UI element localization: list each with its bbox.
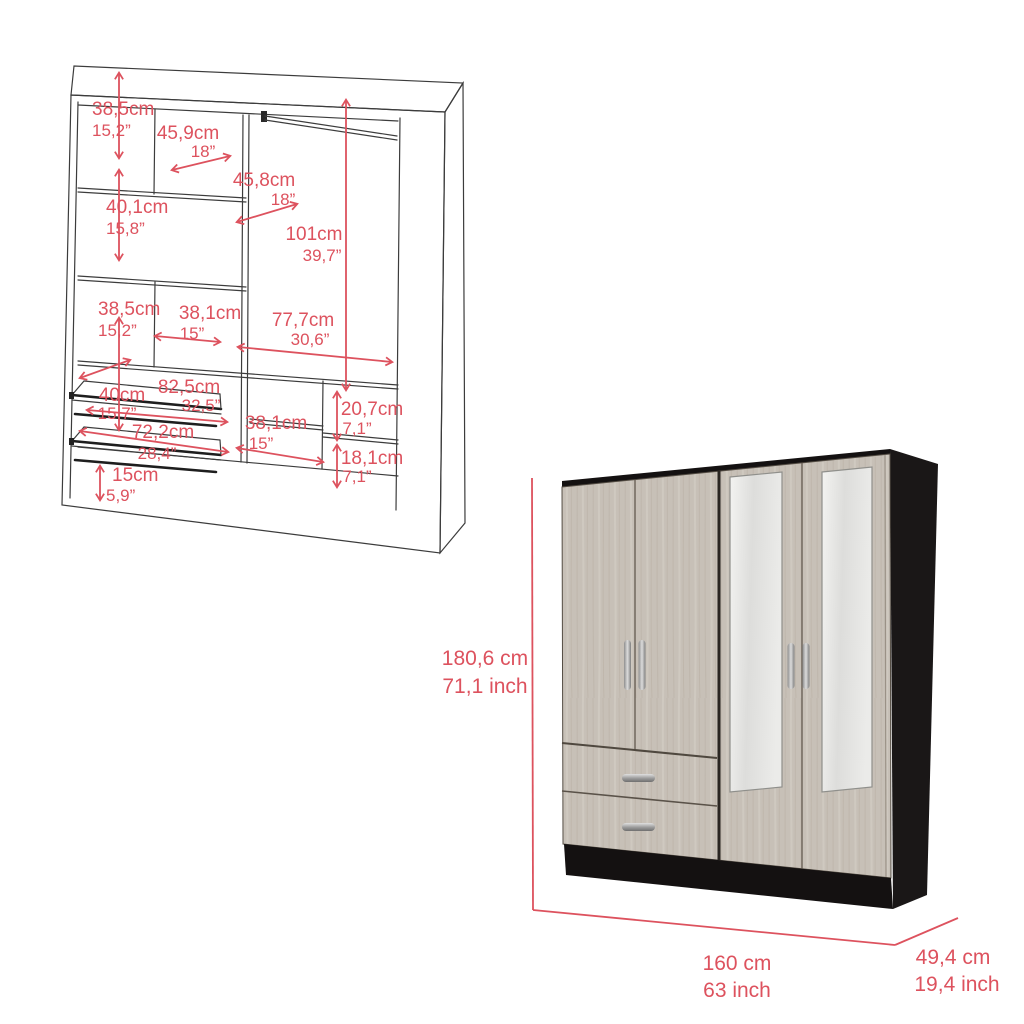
dim-upper-cubby-height: 20,7cm 7,1”	[337, 392, 403, 440]
svg-text:38,5cm: 38,5cm	[92, 99, 154, 120]
svg-text:63 inch: 63 inch	[703, 979, 771, 1002]
svg-text:82,5cm: 82,5cm	[158, 377, 220, 398]
mirror-left	[730, 472, 782, 792]
svg-text:20,7cm: 20,7cm	[341, 399, 403, 420]
svg-text:38,1cm: 38,1cm	[245, 413, 307, 434]
dim-lower-cubby-height: 18,1cm 7,1”	[337, 445, 403, 487]
svg-text:39,7”: 39,7”	[303, 246, 342, 265]
svg-text:28,4”: 28,4”	[138, 444, 177, 463]
svg-text:15,2”: 15,2”	[98, 321, 137, 340]
svg-text:40cm: 40cm	[99, 385, 145, 406]
drawer-handle	[622, 774, 655, 782]
svg-text:38,1cm: 38,1cm	[179, 303, 241, 324]
svg-text:7,1”: 7,1”	[342, 467, 372, 486]
dim-third-shelf-width: 38,1cm 15”	[155, 303, 241, 343]
door-handle	[803, 643, 810, 689]
svg-text:18”: 18”	[271, 190, 296, 209]
cabinet-side-panel	[890, 449, 938, 909]
dim-overall-depth: 49,4 cm 19,4 inch	[895, 918, 1000, 996]
svg-text:15”: 15”	[249, 434, 274, 453]
svg-text:101cm: 101cm	[285, 224, 342, 245]
svg-text:15”: 15”	[180, 324, 205, 343]
svg-text:45,8cm: 45,8cm	[233, 170, 295, 191]
svg-text:40,1cm: 40,1cm	[106, 197, 168, 218]
dim-lower-shelf-width: 38,1cm 15”	[237, 413, 323, 462]
dim-second-compartment-height: 40,1cm 15,8”	[106, 170, 168, 260]
dim-base-height: 15cm 5,9”	[100, 465, 158, 505]
dim-overall-width: 160 cm 63 inch	[533, 910, 895, 1002]
wireframe-diagram: 38,5cm 15,2” 45,9cm 18” 45,8cm 18” 40,1c…	[58, 42, 488, 562]
svg-text:15,2”: 15,2”	[92, 121, 131, 140]
svg-text:18”: 18”	[191, 142, 216, 161]
svg-text:19,4 inch: 19,4 inch	[914, 973, 999, 996]
door-handle	[788, 643, 795, 689]
svg-text:32,5”: 32,5”	[182, 396, 221, 415]
door-handle	[624, 640, 631, 690]
product-render: 180,6 cm 71,1 inch 160 cm 63 inch 49,4 c…	[430, 438, 1024, 1024]
svg-text:72,2cm: 72,2cm	[132, 422, 194, 443]
svg-text:49,4 cm: 49,4 cm	[916, 946, 991, 969]
svg-text:77,7cm: 77,7cm	[272, 310, 334, 331]
dim-top-left-compartment-height: 38,5cm 15,2”	[92, 73, 154, 158]
mirror-right	[822, 467, 872, 792]
dim-top-shelf-width: 45,9cm 18”	[157, 123, 230, 170]
svg-text:71,1 inch: 71,1 inch	[442, 675, 527, 698]
door-handle	[639, 640, 646, 690]
svg-text:30,6”: 30,6”	[291, 330, 330, 349]
svg-text:45,9cm: 45,9cm	[157, 123, 219, 144]
svg-text:5,9”: 5,9”	[106, 486, 136, 505]
svg-text:18,1cm: 18,1cm	[341, 448, 403, 469]
svg-text:38,5cm: 38,5cm	[98, 299, 160, 320]
svg-text:15,8”: 15,8”	[106, 219, 145, 238]
svg-text:7,1”: 7,1”	[342, 419, 372, 438]
svg-text:160 cm: 160 cm	[703, 952, 772, 975]
svg-text:15cm: 15cm	[112, 465, 158, 486]
drawer-handle	[622, 823, 655, 831]
dim-overall-height: 180,6 cm 71,1 inch	[442, 478, 533, 910]
svg-text:180,6 cm: 180,6 cm	[442, 647, 528, 670]
product-dimension-sheet: 38,5cm 15,2” 45,9cm 18” 45,8cm 18” 40,1c…	[0, 0, 1024, 1024]
dim-hanging-space-width: 77,7cm 30,6”	[238, 310, 392, 362]
